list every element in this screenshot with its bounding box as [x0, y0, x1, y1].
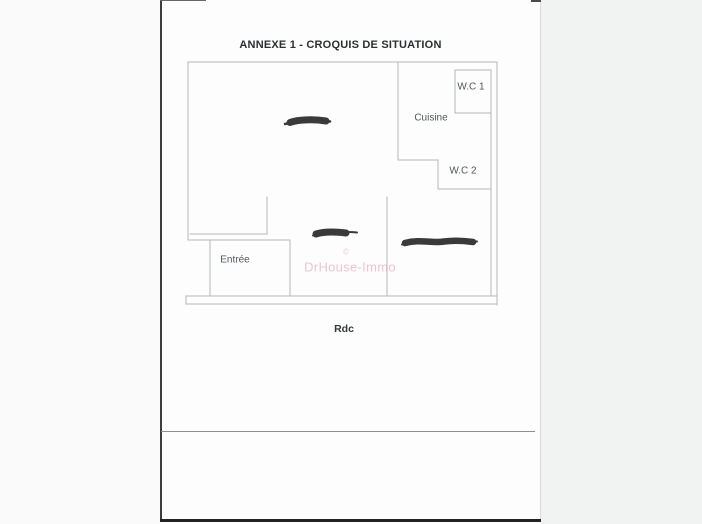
page-edge-right [540, 0, 541, 521]
scan-artifact-line [161, 431, 535, 432]
page-edge-top-right [531, 0, 541, 2]
redaction-marks [285, 120, 477, 245]
page-title: ANNEXE 1 - CROQUIS DE SITUATION [160, 39, 521, 51]
scanned-document-view: ANNEXE 1 - CROQUIS DE SITUATION [0, 0, 702, 524]
page-edge-bottom [160, 519, 541, 522]
watermark-text: DrHouse-Immo [304, 260, 396, 275]
floor-label: Rdc [334, 323, 354, 335]
room-label-wc1: W.C 1 [457, 82, 484, 93]
redaction-mark-3 [402, 241, 477, 245]
page-edge-left [160, 0, 162, 520]
scan-margin-right [541, 0, 702, 524]
room-label-entree: Entrée [220, 255, 249, 266]
page-edge-top-left [160, 0, 206, 1]
redaction-mark-1 [285, 120, 330, 124]
watermark-copyright-icon: © [343, 248, 349, 257]
room-label-wc2: W.C 2 [449, 166, 476, 177]
room-label-cuisine: Cuisine [414, 113, 447, 124]
document-page: ANNEXE 1 - CROQUIS DE SITUATION [160, 0, 541, 524]
scan-margin-left [0, 0, 160, 524]
redaction-mark-2 [313, 232, 357, 236]
